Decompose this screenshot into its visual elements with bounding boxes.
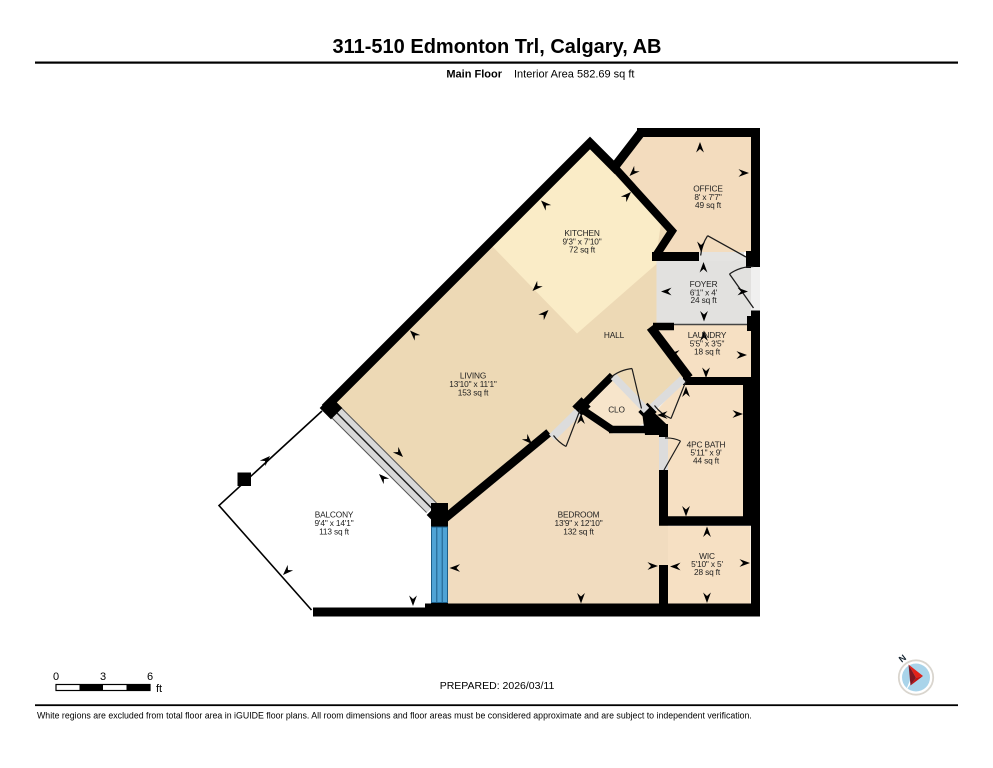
svg-text:49 sq ft: 49 sq ft (695, 200, 722, 210)
svg-text:113 sq ft: 113 sq ft (319, 527, 350, 537)
svg-text:ft: ft (156, 683, 162, 695)
svg-text:PREPARED: 2026/03/11: PREPARED: 2026/03/11 (440, 680, 555, 692)
svg-text:311-510 Edmonton Trl, Calgary,: 311-510 Edmonton Trl, Calgary, AB (333, 36, 662, 58)
svg-text:Interior Area 582.69 sq ft: Interior Area 582.69 sq ft (514, 69, 634, 81)
svg-text:132 sq ft: 132 sq ft (563, 526, 594, 536)
svg-text:18 sq ft: 18 sq ft (694, 347, 721, 357)
svg-text:0: 0 (53, 671, 59, 683)
svg-text:72 sq ft: 72 sq ft (569, 245, 596, 255)
svg-text:3: 3 (100, 671, 106, 683)
svg-text:White regions are excluded fro: White regions are excluded from total fl… (37, 711, 752, 721)
svg-text:Main Floor: Main Floor (446, 69, 502, 81)
svg-text:44 sq ft: 44 sq ft (693, 456, 720, 466)
svg-text:HALL: HALL (604, 330, 625, 340)
svg-text:CLO: CLO (608, 405, 625, 415)
svg-text:153 sq ft: 153 sq ft (458, 388, 489, 398)
svg-text:28 sq ft: 28 sq ft (694, 567, 721, 577)
svg-text:6: 6 (147, 671, 153, 683)
svg-text:24 sq ft: 24 sq ft (690, 295, 717, 305)
